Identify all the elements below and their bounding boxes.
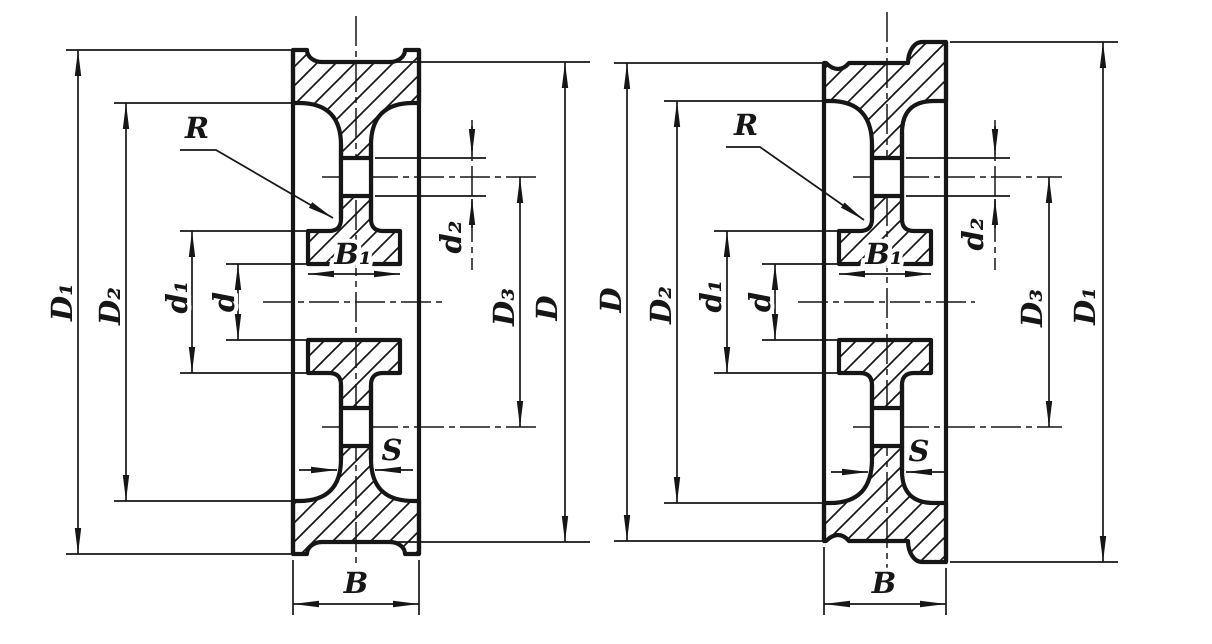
label-D: D: [594, 287, 628, 313]
upper-rim-web-hub-section: [824, 42, 946, 264]
wheel-section-drawing: D₁ D₂ d₁ d D₃: [0, 0, 1212, 644]
label-d: d: [743, 292, 777, 312]
label-d: d: [207, 292, 241, 312]
label-D3: D₃: [1015, 289, 1049, 328]
label-R: R: [184, 111, 209, 145]
label-D: D: [530, 295, 564, 321]
label-B: B: [871, 566, 897, 600]
label-B: B: [343, 566, 369, 600]
dimension-D3: D₃: [1015, 177, 1049, 427]
label-S: S: [909, 434, 930, 468]
lower-web-hole: [872, 408, 902, 446]
label-d2: d₂: [434, 221, 468, 254]
label-D1: D₁: [45, 283, 79, 322]
dimension-D3: D₃: [487, 177, 521, 427]
figure-double-flanged-wheel: D₁ D₂ d₁ d D₃: [45, 16, 590, 615]
figure-single-flanged-wheel: D D₂ d₁ d D₃: [594, 12, 1118, 615]
label-d2: d₂: [956, 218, 990, 251]
dimension-B: B: [293, 560, 419, 615]
label-D3: D₃: [487, 288, 521, 327]
label-B1: B₁: [333, 237, 371, 271]
label-D2: D₂: [644, 286, 678, 325]
label-D1: D₁: [1068, 287, 1102, 326]
dimension-D2: D₂: [644, 101, 822, 503]
label-S: S: [382, 433, 403, 467]
upper-web-hole: [341, 158, 371, 196]
label-D2: D₂: [93, 287, 127, 326]
radius-callout-R: R: [180, 111, 333, 218]
technical-drawing-page: D₁ D₂ d₁ d D₃: [0, 0, 1212, 644]
lower-web-hole: [341, 408, 371, 446]
upper-web-hole: [872, 158, 902, 196]
label-d1: d₁: [160, 281, 194, 314]
label-d1: d₁: [694, 280, 728, 313]
label-B1: B₁: [864, 237, 902, 271]
radius-callout-R: R: [726, 108, 864, 220]
label-R: R: [733, 108, 758, 142]
